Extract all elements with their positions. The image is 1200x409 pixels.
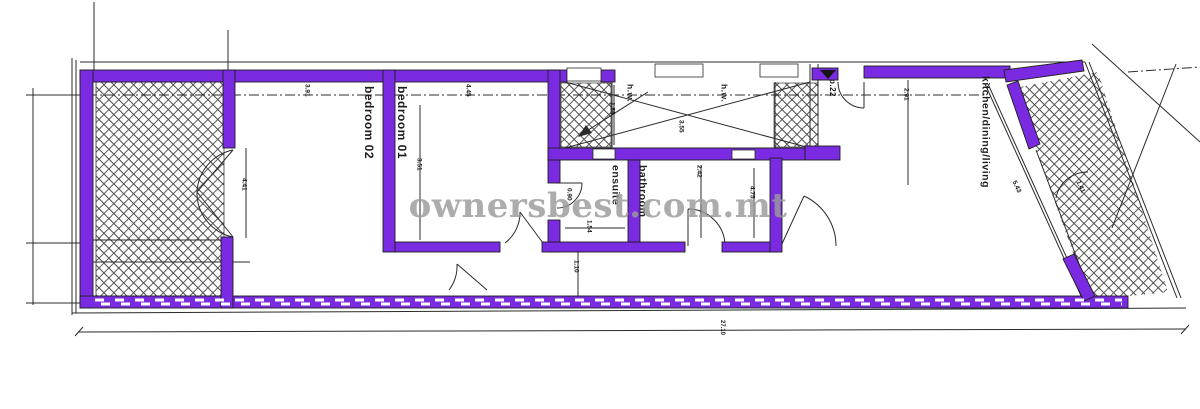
dim-shaft-left: 1.55 [608, 102, 615, 115]
terrace-hatch-left [96, 82, 224, 296]
door-ref-p22: p.22 [828, 79, 836, 97]
room-label-bedroom01: bedroom 01 [396, 86, 408, 159]
dim-bedroom02-height: 4.41 [240, 178, 247, 191]
dim-corridor-width: 1.10 [572, 260, 579, 273]
room-label-bedroom02: bedroom 02 [363, 86, 375, 159]
dim-overall-length: 27.10 [719, 320, 725, 335]
dim-bedroom01-height: 3.51 [415, 158, 422, 171]
dim-bedroom01-width: 4.45 [464, 84, 471, 97]
dim-bathroom-depth: 2.42 [695, 165, 702, 178]
floor-plan-canvas: bedroom 02 bedroom 01 ensuite bathroom k… [0, 0, 1200, 409]
room-label-kitchen: kitchen/dining/living [980, 76, 991, 188]
dim-kitchen-top: 2.91 [902, 88, 909, 101]
room-label-hw-right: h.w. [720, 84, 729, 102]
dim-shaft-width: 3.55 [677, 120, 684, 133]
dim-bedroom02-width: 3.91 [303, 84, 310, 97]
terrace-hatch-right [1015, 72, 1168, 300]
stair-hatch-right [774, 83, 818, 147]
room-label-hw-left: h.w. [626, 84, 635, 102]
watermark-text: ownersbest.com.mt [409, 186, 788, 226]
